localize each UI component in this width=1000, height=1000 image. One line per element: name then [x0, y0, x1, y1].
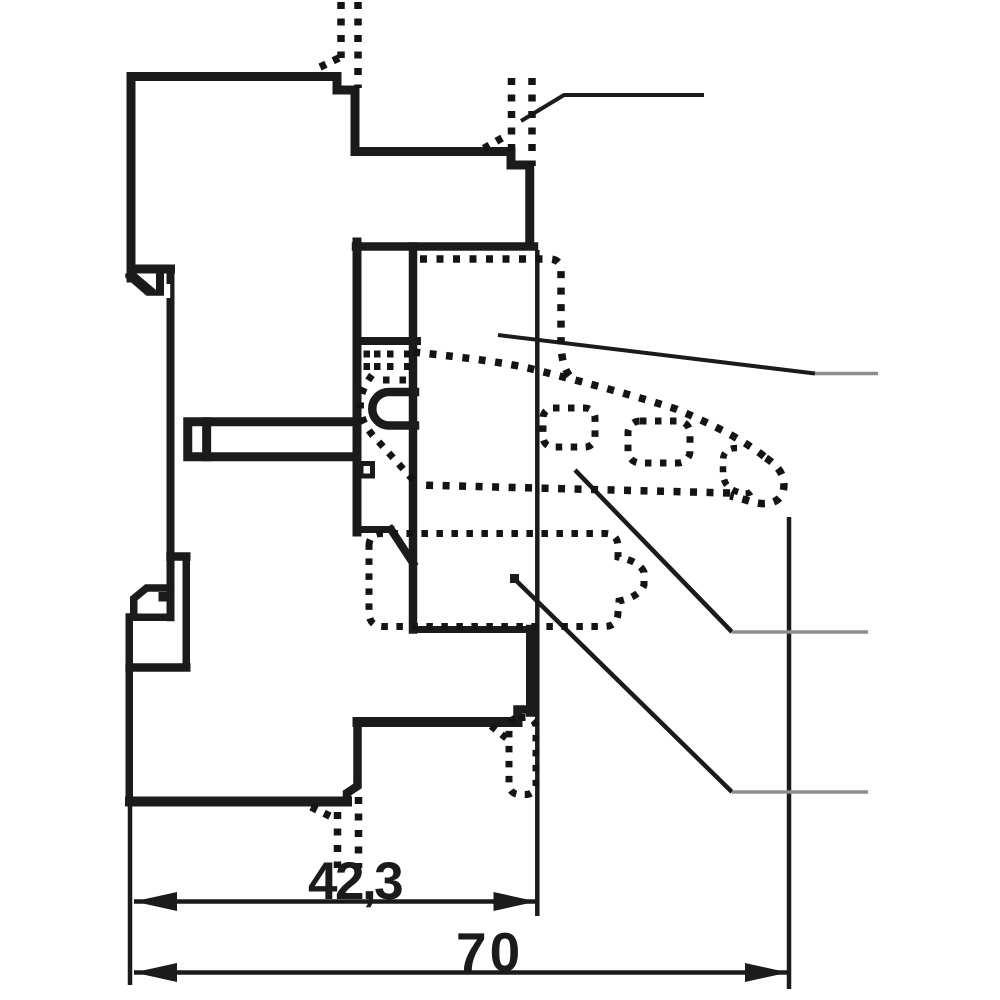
- svg-text:42,3: 42,3: [308, 852, 402, 911]
- svg-text:70: 70: [456, 921, 523, 983]
